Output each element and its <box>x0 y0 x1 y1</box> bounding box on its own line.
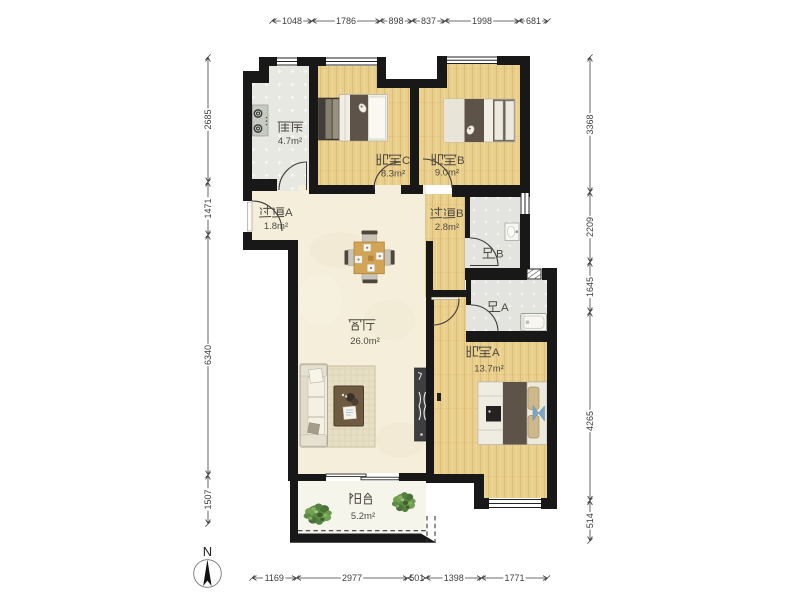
svg-text:1645: 1645 <box>585 277 595 297</box>
svg-text:A: A <box>492 347 500 359</box>
svg-text:501: 501 <box>409 573 424 583</box>
svg-text:1471: 1471 <box>203 198 213 218</box>
svg-text:1771: 1771 <box>504 573 524 583</box>
svg-text:681: 681 <box>526 16 541 26</box>
svg-text:4.7m²: 4.7m² <box>278 136 302 147</box>
svg-text:9.0m²: 9.0m² <box>435 168 459 179</box>
svg-text:A: A <box>285 207 293 219</box>
svg-text:1169: 1169 <box>265 573 284 583</box>
svg-text:2209: 2209 <box>585 217 595 237</box>
svg-text:514: 514 <box>585 513 595 528</box>
svg-text:2977: 2977 <box>342 573 362 583</box>
svg-text:1398: 1398 <box>444 573 464 583</box>
svg-text:N: N <box>203 544 212 559</box>
svg-text:2.8m²: 2.8m² <box>435 222 459 233</box>
svg-text:2685: 2685 <box>203 109 213 129</box>
svg-text:26.0m²: 26.0m² <box>350 336 380 347</box>
svg-text:1998: 1998 <box>472 16 492 26</box>
svg-text:6340: 6340 <box>203 345 213 365</box>
svg-text:1507: 1507 <box>203 489 213 509</box>
svg-text:13.7m²: 13.7m² <box>474 364 504 375</box>
svg-text:4265: 4265 <box>585 411 595 431</box>
svg-text:898: 898 <box>388 16 403 26</box>
svg-text:3368: 3368 <box>585 114 595 134</box>
svg-text:1786: 1786 <box>336 16 356 26</box>
svg-text:C: C <box>402 155 410 167</box>
svg-text:8.3m²: 8.3m² <box>381 169 405 180</box>
svg-text:1048: 1048 <box>282 16 302 26</box>
svg-text:B: B <box>456 208 464 220</box>
svg-text:5.2m²: 5.2m² <box>351 511 375 522</box>
svg-text:A: A <box>501 302 509 314</box>
svg-text:1.8m²: 1.8m² <box>264 221 288 232</box>
svg-text:837: 837 <box>421 16 436 26</box>
svg-text:B: B <box>496 248 504 260</box>
svg-text:B: B <box>457 155 465 167</box>
